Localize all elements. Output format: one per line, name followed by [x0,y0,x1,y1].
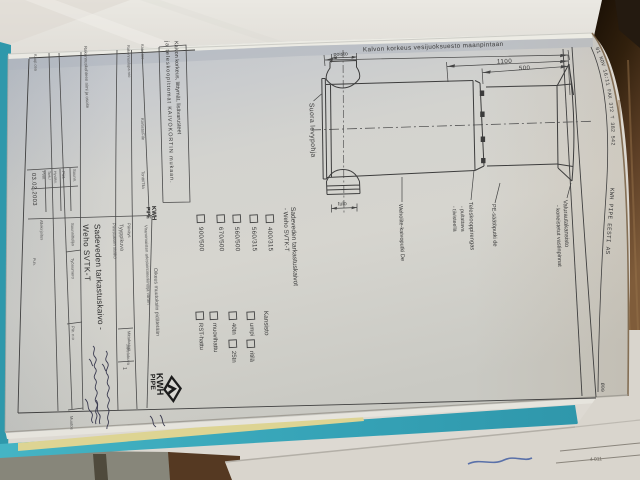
svg-text:4 011: 4 011 [590,456,603,463]
svg-text:PIPE: PIPE [145,207,151,220]
svg-text:Kaiv. nro: Kaiv. nro [140,44,146,60]
svg-text:1100: 1100 [497,58,513,66]
svg-text:Suunnittelija: Suunnittelija [70,223,76,247]
svg-text:25tn: 25tn [230,351,236,363]
svg-text:Muutos: Muutos [69,416,74,430]
svg-text:560/500: 560/500 [233,227,241,252]
svg-text:03.02.2003: 03.02.2003 [30,173,37,206]
svg-text:500: 500 [519,66,531,72]
svg-text:Päiväys: Päiväys [127,223,133,238]
svg-text:Piirt.: Piirt. [61,171,66,180]
svg-text:Allekirjoitus: Allekirjoitus [39,220,45,240]
svg-text:RST-hattu: RST-hattu [197,323,204,350]
svg-text:Kansisto: Kansisto [262,311,270,336]
svg-text:Tark./: Tark./ [47,171,51,180]
svg-text:1: 1 [121,367,127,370]
svg-text:Mittakaava: Mittakaava [127,331,133,352]
svg-text:muovihattu: muovihattu [211,323,218,353]
svg-text:umpi: umpi [248,323,254,336]
svg-text:Pvm: Pvm [41,171,46,180]
svg-text:560/315: 560/315 [250,227,258,252]
svg-text:ritilä: ritilä [248,351,254,363]
svg-text:670/500: 670/500 [217,227,225,252]
svg-text:Tontti/Tila: Tontti/Tila [141,171,147,190]
svg-text:- pultattava: - pultattava [459,206,466,232]
svg-text:Kortisto/File: Kortisto/File [140,118,146,141]
svg-text:40tn: 40tn [230,323,236,335]
svg-text:Hyväks.: Hyväks. [53,171,57,184]
svg-text:Kaup.osa: Kaup.osa [33,54,39,72]
svg-text:Suunn.: Suunn. [72,169,77,182]
svg-text:PIPE: PIPE [149,374,157,391]
svg-text:tulo: tulo [338,201,347,207]
svg-text:Tyyppikuva: Tyyppikuva [118,224,125,251]
svg-text:400/315: 400/315 [266,227,274,252]
svg-text:- tiivisteellä: - tiivisteellä [451,206,458,232]
svg-text:Työnumero: Työnumero [70,258,76,280]
svg-text:poisto: poisto [333,51,348,58]
svg-text:900/500: 900/500 [197,227,205,252]
svg-text:Piir. n:o: Piir. n:o [71,326,77,341]
svg-text:Puh.: Puh. [32,258,36,266]
